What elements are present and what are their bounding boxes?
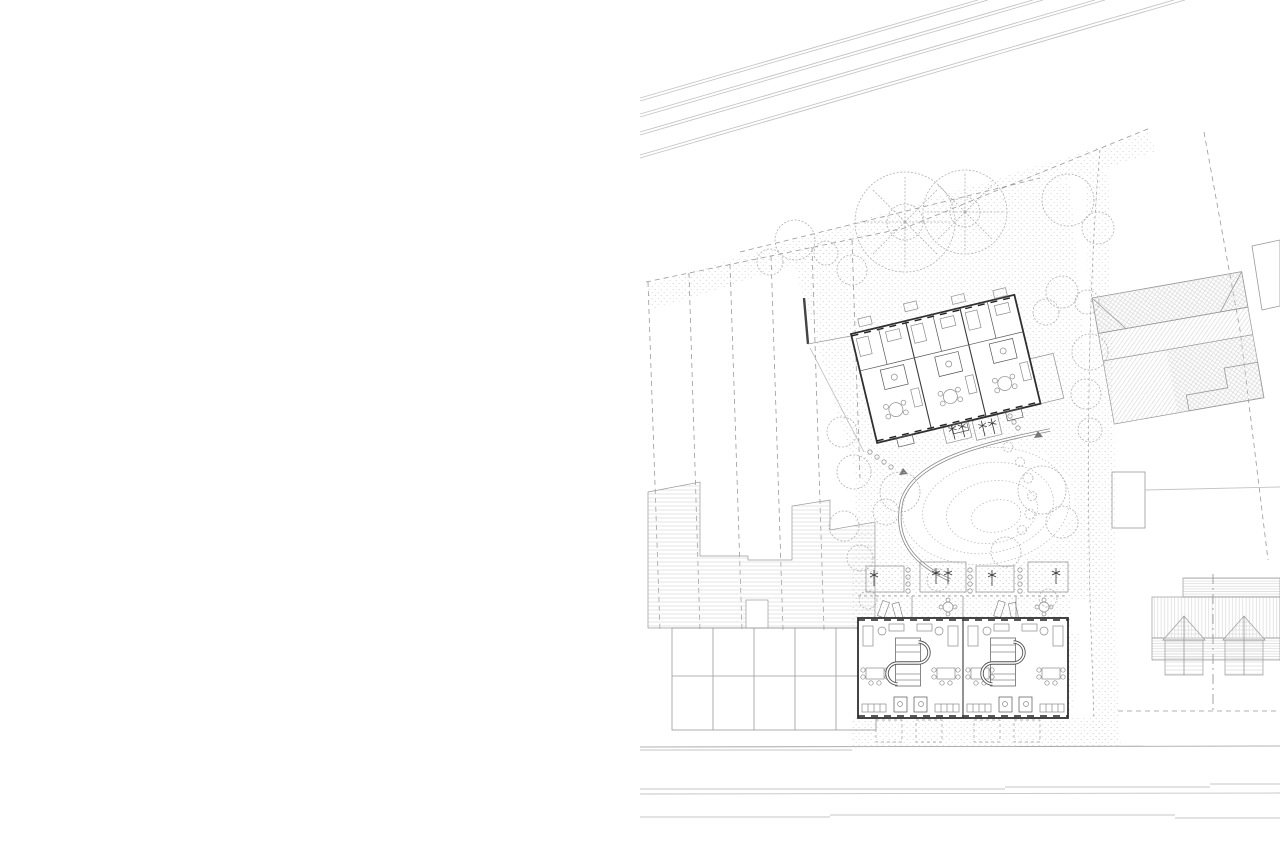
roof-fragment-northeast: [1252, 240, 1280, 310]
allotment-buildings: [648, 482, 875, 628]
shed-grid: [672, 628, 876, 730]
existing-houses-southeast: [1152, 574, 1280, 712]
lower-terraced-houses: [858, 618, 1068, 718]
south-road: [640, 746, 1280, 818]
railway-corridor: [640, 0, 1185, 158]
plan-sheet: [0, 0, 1280, 853]
existing-house-east: [1092, 272, 1264, 424]
garage-east: [1112, 472, 1280, 528]
site-plan-drawing: [0, 0, 1280, 853]
